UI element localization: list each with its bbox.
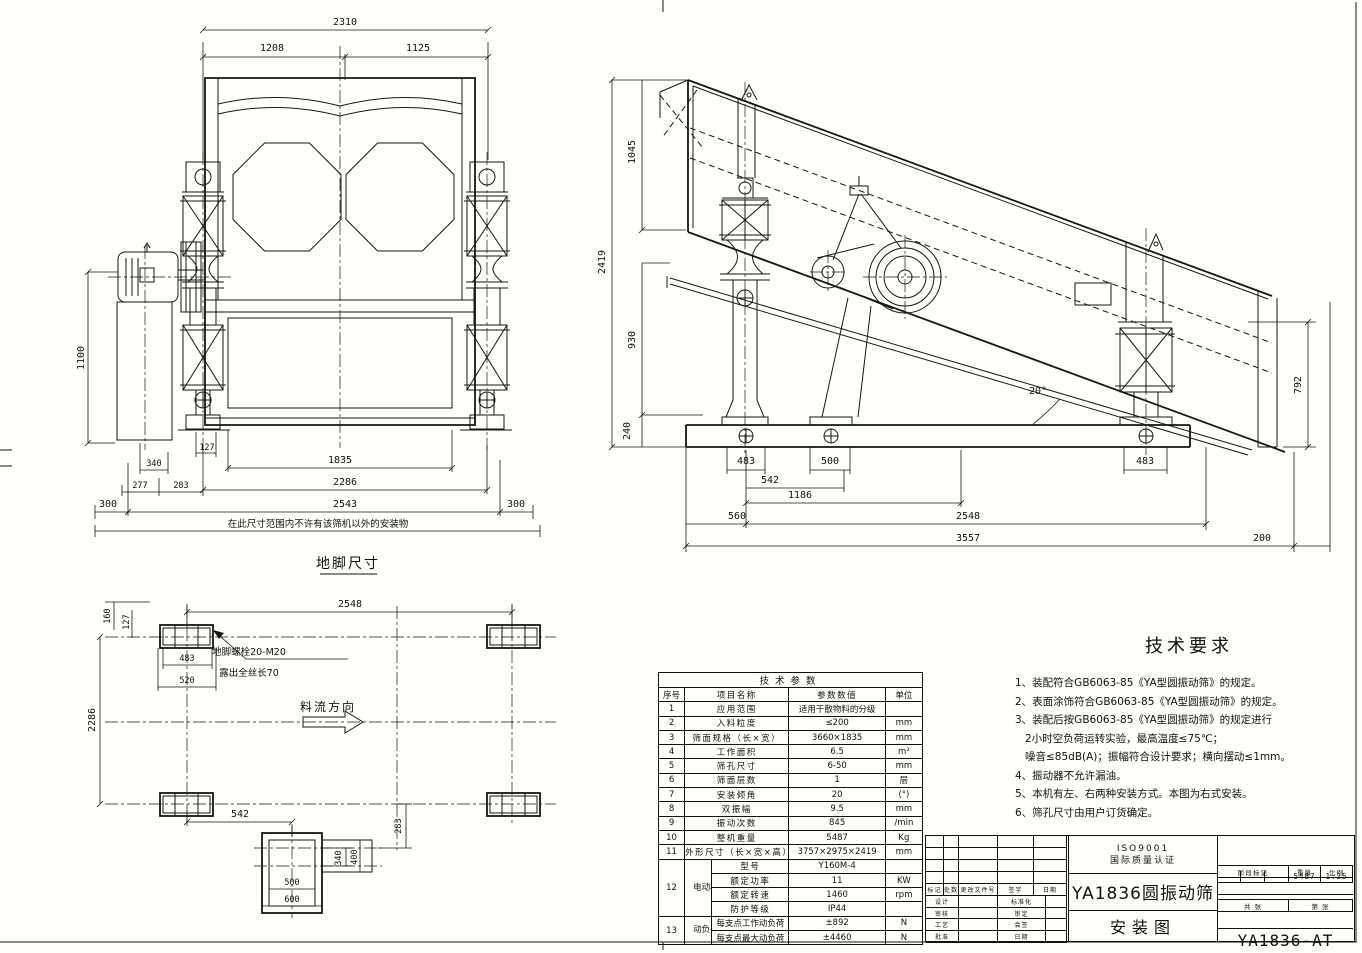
dim-front-seg-left: 1208	[260, 43, 284, 54]
front-view: 2310 1208 1125 1100	[76, 17, 540, 574]
sign-label: 会签	[998, 919, 1046, 931]
front-right-support	[464, 152, 510, 450]
col-header-value: 参数数值	[789, 688, 885, 702]
sign-label: 设计	[926, 896, 959, 908]
motor	[108, 242, 232, 450]
dim-front-340: 340	[146, 459, 161, 469]
dim-side-542: 542	[761, 475, 779, 486]
screen-mesh-right	[346, 143, 454, 251]
tech-note-line: 2、表面涂饰符合GB6063-85《YA型圆振动筛》的规定。	[1015, 693, 1362, 712]
dim-front-clear-right: 300	[507, 499, 525, 510]
dim-side-angle: 20°	[1029, 386, 1047, 397]
rev-header-sign: 签字	[998, 884, 1034, 896]
sign-label: 审定	[998, 908, 1046, 920]
dim-side-foot-mid: 500	[821, 456, 839, 467]
col-header-name: 项目名称	[685, 688, 789, 702]
sign-label: 审核	[926, 908, 959, 920]
certification: ISO9001 国际质量认证	[1069, 836, 1217, 874]
dim-front-seg-right: 1125	[406, 43, 430, 54]
anchor-bolt-note-2: 露出全丝长70	[219, 667, 279, 679]
rev-header-docno: 更改文件号	[959, 884, 998, 896]
parameter-table-title: 技术参数	[659, 673, 923, 688]
dim-side-2548: 2548	[956, 511, 980, 522]
title-block: 标记 处数 更改文件号 签字 日期 设计 标准化 审核 审定 工艺 会签 批准 …	[925, 835, 1355, 942]
side-left-support	[719, 82, 771, 455]
table-row: 5筛孔尺寸6-50mm	[659, 759, 923, 773]
table-row-load: 13 动负荷 每支点工作动负荷±892N	[659, 916, 923, 930]
dim-front-height: 1100	[76, 346, 87, 370]
sheets-total: 共 张	[1218, 900, 1289, 912]
parameter-table: 技术参数 序号 项目名称 参数数值 单位 1应用范围适用干散物料的分级 2入料粒…	[658, 672, 923, 945]
sheet-index: 第 张	[1289, 900, 1353, 912]
rev-header-count: 处数	[944, 884, 959, 896]
dim-side-200: 200	[1253, 533, 1271, 544]
table-row: 8双振幅9.5mm	[659, 802, 923, 816]
cert-iso: ISO9001	[1117, 843, 1169, 855]
tech-note-line: 噪音≤85dB(A)；振幅符合设计要求；横向摆动≤1mm。	[1015, 748, 1362, 767]
tech-note-line: 4、振动器不允许漏油。	[1015, 767, 1362, 786]
motor-pedestal	[117, 302, 172, 440]
flow-direction-label: 料流方向	[300, 699, 356, 714]
table-row-motor: 12 电动机 型号Y160M-4	[659, 859, 923, 873]
dim-front-screen-width: 1835	[328, 455, 352, 466]
dim-side-240: 240	[622, 422, 633, 440]
dim-plan-340: 340	[334, 850, 344, 865]
dim-plan-542: 542	[231, 809, 249, 820]
side-view: 2419 1045 930 240	[597, 77, 1330, 552]
col-header-unit: 单位	[885, 688, 922, 702]
dim-front-283: 283	[173, 481, 188, 491]
dim-front-total: 2310	[333, 17, 357, 28]
keep-clear-note: 在此尺寸范围内不许有该筛机以外的安装物	[228, 518, 409, 530]
dim-side-930: 930	[627, 331, 638, 349]
table-row: 3筛面规格（长×宽）3660×1835mm	[659, 730, 923, 744]
front-view-caption: 地脚尺寸	[316, 556, 380, 572]
dim-side-total-length: 3557	[956, 533, 980, 544]
scale-value: 1:25	[1321, 871, 1353, 883]
product-name: YA1836圆振动筛	[1069, 874, 1217, 910]
side-right-support	[1115, 228, 1175, 455]
anchor-bolt-note-1: 地脚螺栓20-M20	[212, 646, 286, 658]
title-block-right: 阶段标记 重量 比例 5487 1:25 共 张 第 张 YA1836-AT	[1218, 836, 1353, 941]
dim-side-792: 792	[1293, 376, 1304, 394]
col-header-no: 序号	[659, 688, 685, 702]
revision-table: 标记 处数 更改文件号 签字 日期 设计 标准化 审核 审定 工艺 会签 批准 …	[926, 836, 1069, 941]
screen-mesh-left	[233, 143, 341, 251]
load-group-label: 动负荷	[685, 916, 712, 945]
table-row: 6筛面层数1层	[659, 773, 923, 787]
table-row: 10整机重量5487Kg	[659, 830, 923, 844]
dim-side-1045: 1045	[627, 140, 638, 164]
rev-header-mark: 标记	[926, 884, 944, 896]
tech-note-line: 2小时空负荷运转实验，最高温度≤75℃；	[1015, 730, 1362, 749]
tech-notes-title: 技术要求	[1015, 632, 1362, 658]
dim-plan-span: 2548	[338, 599, 362, 610]
base-rail	[686, 425, 1190, 447]
sign-label: 标准化	[998, 896, 1046, 908]
leader-arrow	[213, 630, 224, 639]
dim-front-127: 127	[199, 443, 214, 453]
title-block-center: ISO9001 国际质量认证 YA1836圆振动筛 安装图	[1069, 836, 1218, 941]
sheet-name: 安装图	[1069, 911, 1217, 941]
dim-plan-400: 400	[350, 849, 360, 864]
dim-side-total-height: 2419	[597, 250, 608, 274]
table-row: 1应用范围适用干散物料的分级	[659, 702, 923, 716]
tech-note-line: 3、装配后按GB6063-85《YA型圆振动筛》的规定进行	[1015, 711, 1362, 730]
drawing-number: YA1836-AT	[1218, 929, 1353, 953]
dim-front-clear-left: 300	[99, 499, 117, 510]
dim-front-277: 277	[132, 481, 147, 491]
sign-label: 日期	[998, 931, 1046, 943]
plan-view: 160 127 2548 2286 483 520 地脚螺栓20-M20 露出全…	[87, 599, 556, 918]
sign-label: 批准	[926, 931, 959, 943]
discharge-pad	[254, 833, 382, 913]
table-row: 2入料粒度≤200mm	[659, 716, 923, 730]
dim-side-560: 560	[728, 511, 746, 522]
dim-plan-160: 160	[103, 608, 113, 623]
front-left-support	[180, 152, 226, 450]
dim-plan-127: 127	[122, 614, 132, 629]
dim-plan-side-span: 2286	[87, 708, 98, 732]
table-row: 9振动次数845/min	[659, 816, 923, 830]
dim-side-1186: 1186	[788, 490, 812, 501]
side-middle-support	[810, 298, 871, 443]
weight-value: 5487	[1289, 871, 1321, 883]
table-row: 7安装倾角20(°)	[659, 788, 923, 802]
dim-side-foot-left: 483	[737, 456, 755, 467]
tech-note-line: 6、筛孔尺寸由用户订货确定。	[1015, 804, 1362, 823]
table-row: 11外形尺寸（长×宽×高）3757×2975×2419mm	[659, 845, 923, 859]
dim-plan-483: 483	[179, 654, 194, 664]
dim-plan-283: 283	[394, 818, 404, 833]
table-row: 4工作面积6.5m²	[659, 745, 923, 759]
dim-front-base-width: 2543	[333, 499, 357, 510]
dim-front-bolt-width: 2286	[333, 477, 357, 488]
cert-text: 国际质量认证	[1110, 855, 1176, 867]
dim-plan-520: 520	[179, 676, 194, 686]
dim-plan-500: 500	[284, 878, 299, 888]
motor-group-label: 电动机	[685, 859, 712, 916]
dim-plan-600: 600	[284, 895, 299, 905]
sign-label: 工艺	[926, 919, 959, 931]
tech-note-line: 1、装配符合GB6063-85《YA型圆振动筛》的规定。	[1015, 674, 1362, 693]
dim-side-foot-right: 483	[1136, 456, 1154, 467]
rev-header-date: 日期	[1034, 884, 1067, 896]
screen-body	[660, 80, 1285, 452]
tech-note-line: 5、本机有左、右两种安装方式。本图为右式安装。	[1015, 785, 1362, 804]
tech-notes: 技术要求 1、装配符合GB6063-85《YA型圆振动筛》的规定。 2、表面涂饰…	[1015, 632, 1362, 822]
